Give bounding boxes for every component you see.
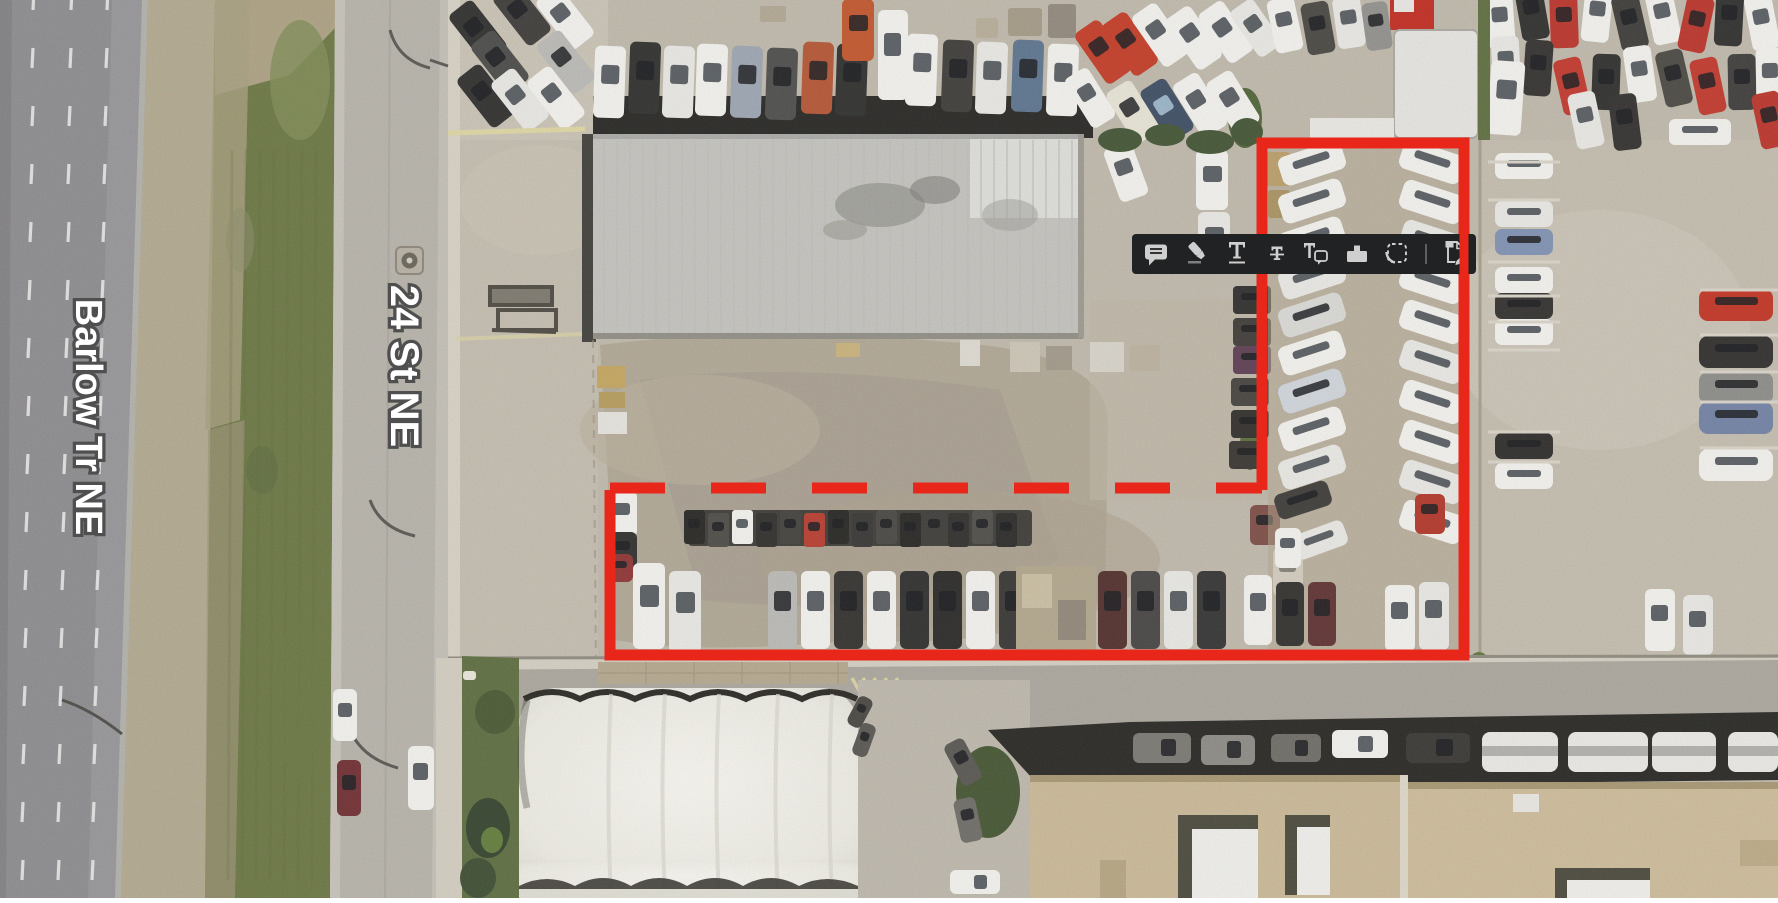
- svg-text:Barlow Tr NE: Barlow Tr NE: [67, 299, 109, 536]
- svg-text:24 St NE: 24 St NE: [382, 285, 426, 447]
